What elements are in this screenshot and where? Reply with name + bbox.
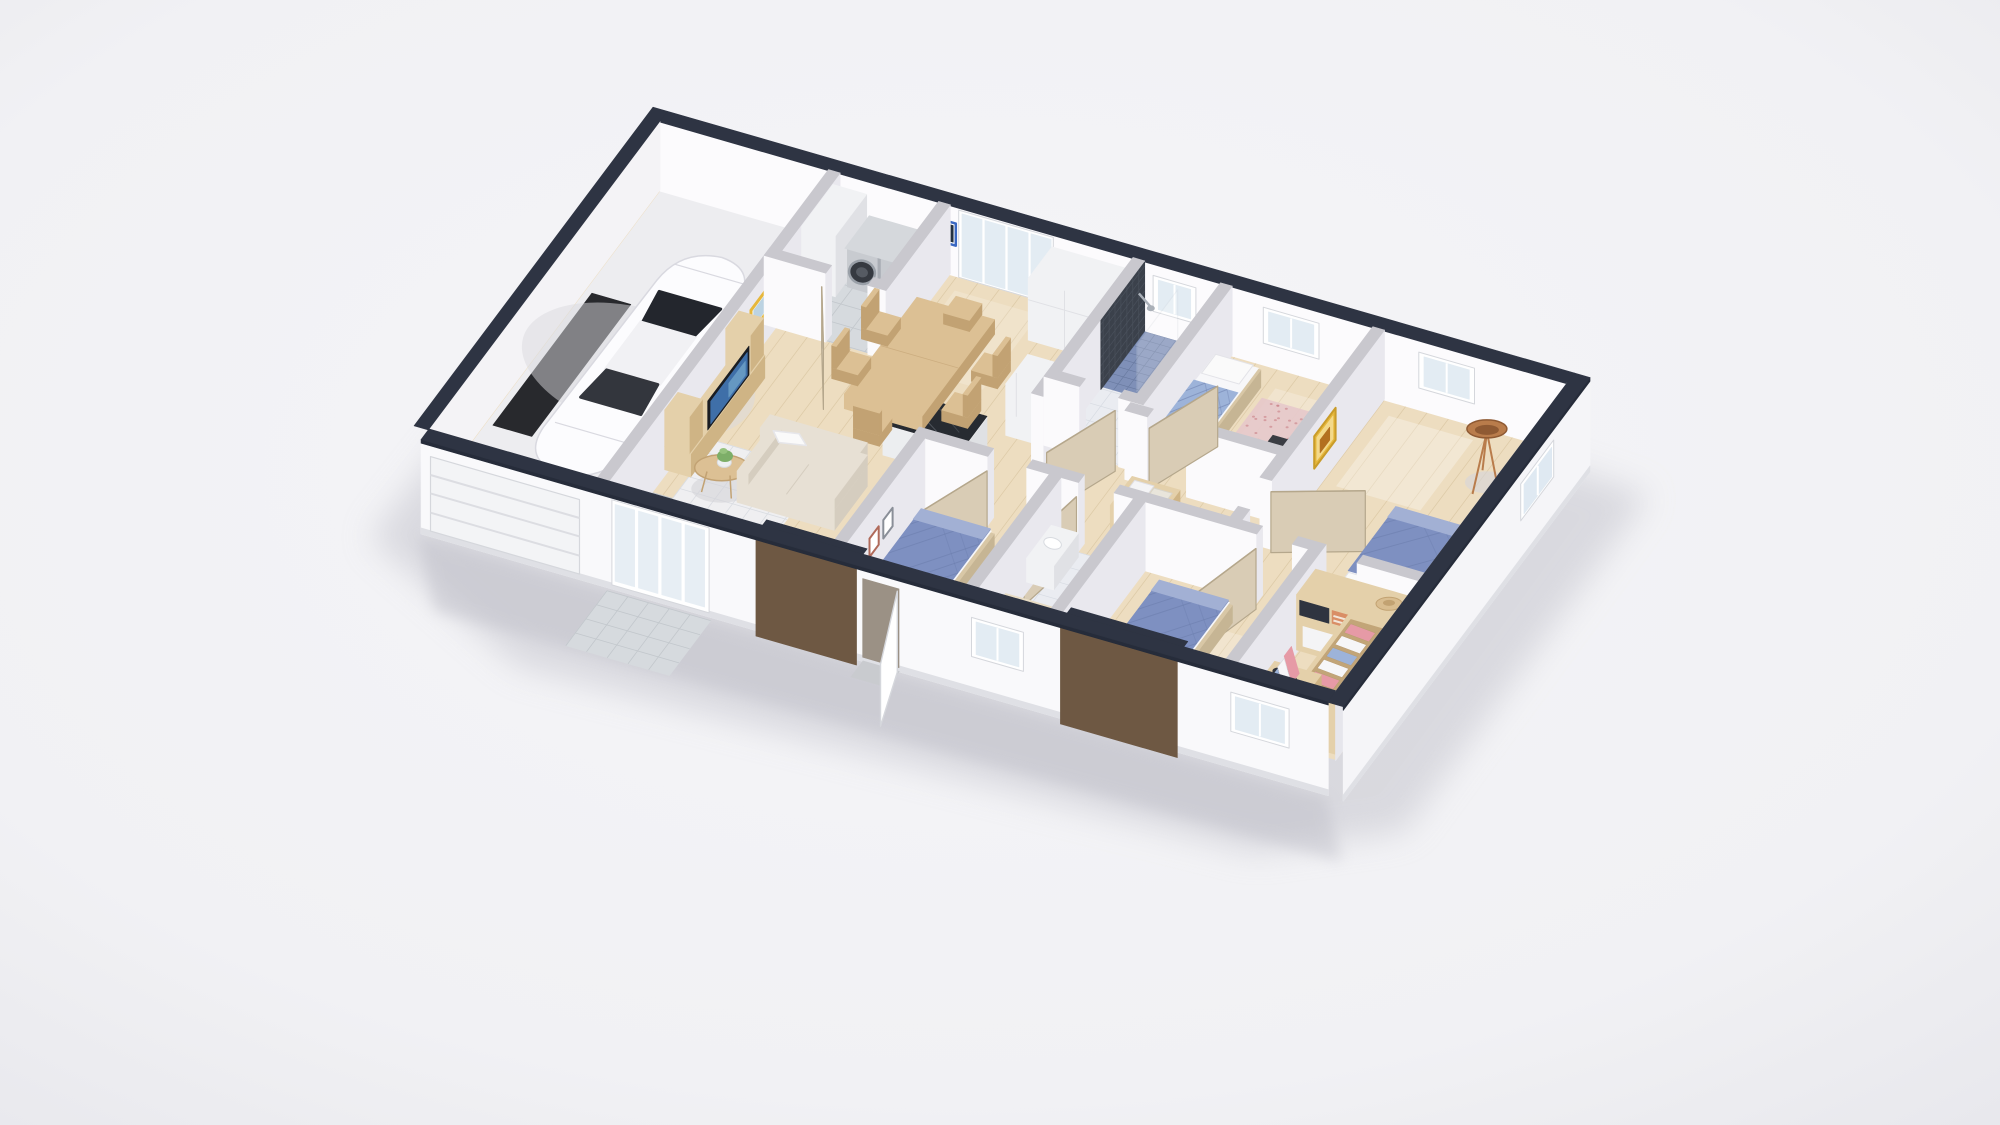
- glass-pane: [615, 504, 635, 586]
- glass-pane: [685, 525, 705, 607]
- floorplan-3d-render: [0, 0, 2000, 1125]
- patio-door-glass: [1008, 227, 1028, 295]
- patio-door-glass: [962, 214, 982, 282]
- glass-pane: [639, 511, 658, 593]
- glass-pane: [662, 518, 681, 601]
- floorplan-viewport: [0, 0, 2000, 1125]
- patio-door-glass: [985, 220, 1005, 288]
